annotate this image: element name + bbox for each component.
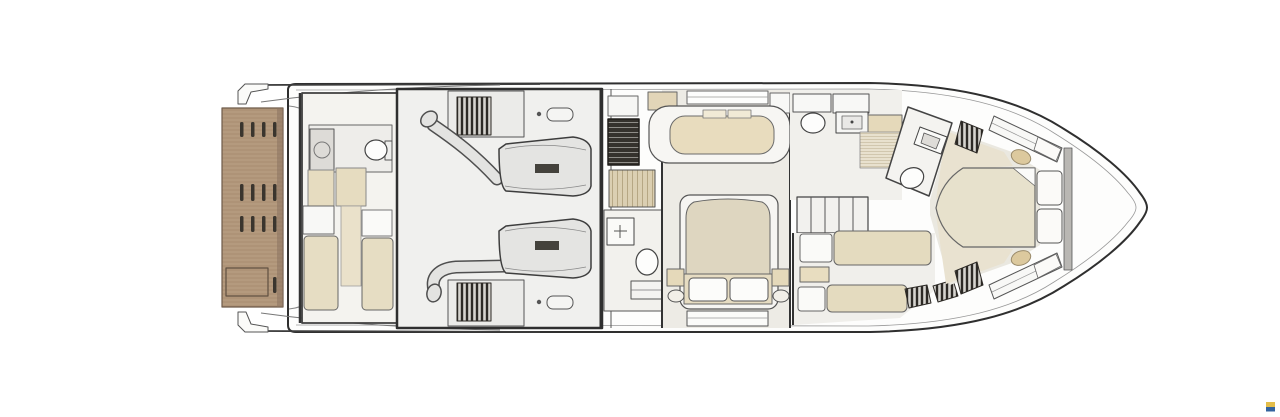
platform-slot xyxy=(273,184,277,201)
crew-toilet xyxy=(365,140,387,160)
er-fitting-bottom xyxy=(547,296,573,309)
master-skylight xyxy=(687,91,768,104)
master-sofa-seat xyxy=(670,116,774,154)
stairs-dark-hatch xyxy=(608,119,639,165)
swim-platform-edge xyxy=(277,108,283,307)
twin-pillow-upper xyxy=(800,234,832,262)
twin-bed-lower xyxy=(827,285,907,312)
master-pillow-right xyxy=(730,278,768,301)
er-fitting-dot-bottom xyxy=(537,300,541,304)
engine-starboard-label xyxy=(535,164,559,173)
master-bath-toilet xyxy=(636,249,658,275)
platform-slot xyxy=(273,216,277,232)
corridor-cabinet-2 xyxy=(833,94,869,113)
companionway-stairs xyxy=(797,197,868,233)
crew-locker-left xyxy=(308,170,334,206)
master-sofa-cushion xyxy=(728,110,751,118)
platform-slot xyxy=(273,122,277,137)
vip-bed xyxy=(936,168,1035,247)
stairs-wood-treads xyxy=(609,170,655,207)
platform-slot xyxy=(240,122,244,137)
crew-corridor-strip xyxy=(341,206,361,286)
deck-edge-bottom xyxy=(247,331,540,332)
crew-cabinet xyxy=(303,206,334,234)
platform-slot xyxy=(240,184,244,201)
twin-bed-upper xyxy=(834,231,931,265)
vip-pillow-bottom xyxy=(1037,209,1062,243)
er-fitting-dot-top xyxy=(537,112,541,116)
crew-locker-mid xyxy=(336,168,366,206)
platform-slot xyxy=(251,122,255,137)
crew-bed-left xyxy=(304,236,338,310)
platform-slot xyxy=(273,277,277,293)
engine-room-vent-top xyxy=(457,97,491,135)
corridor-beige-counter xyxy=(868,115,902,134)
twin-nightstand xyxy=(800,267,829,282)
crew-berth-head xyxy=(362,210,392,236)
platform-slot xyxy=(262,184,266,201)
crew-bed-right xyxy=(362,238,393,310)
master-nightstand-left xyxy=(667,269,684,286)
guest-toilet xyxy=(801,113,825,133)
engine-port-label xyxy=(535,241,559,250)
stern-corner-bracket-top xyxy=(238,84,268,104)
master-pillow-left xyxy=(689,278,727,301)
er-fitting-top xyxy=(547,108,573,121)
galley-cabinet-top xyxy=(608,96,638,116)
yacht-floor-plan xyxy=(0,0,1280,417)
watermark-bottom xyxy=(1266,407,1275,412)
master-nightstand-right xyxy=(772,269,789,286)
platform-slot xyxy=(240,216,244,232)
master-stool-right xyxy=(773,290,789,302)
twin-pillow-lower xyxy=(798,287,825,311)
master-tv-cabinet xyxy=(687,311,768,326)
vip-pillow-top xyxy=(1037,171,1062,205)
bow-collision-bulkhead xyxy=(1064,148,1072,270)
platform-slot xyxy=(251,216,255,232)
floor-plan-canvas xyxy=(0,0,1280,417)
platform-slot xyxy=(262,122,266,137)
platform-slot xyxy=(262,216,266,232)
platform-slot xyxy=(251,184,255,201)
master-stool-left xyxy=(668,290,684,302)
guest-vanity-faucet-dot xyxy=(851,121,854,124)
watermark-top xyxy=(1266,402,1275,407)
master-bed-mattress xyxy=(686,199,770,278)
master-sofa-cushion xyxy=(703,110,726,118)
corridor-cabinet-1 xyxy=(793,94,831,112)
stern-corner-bracket-bottom xyxy=(238,312,268,332)
engine-room-vent-bottom xyxy=(457,283,491,321)
